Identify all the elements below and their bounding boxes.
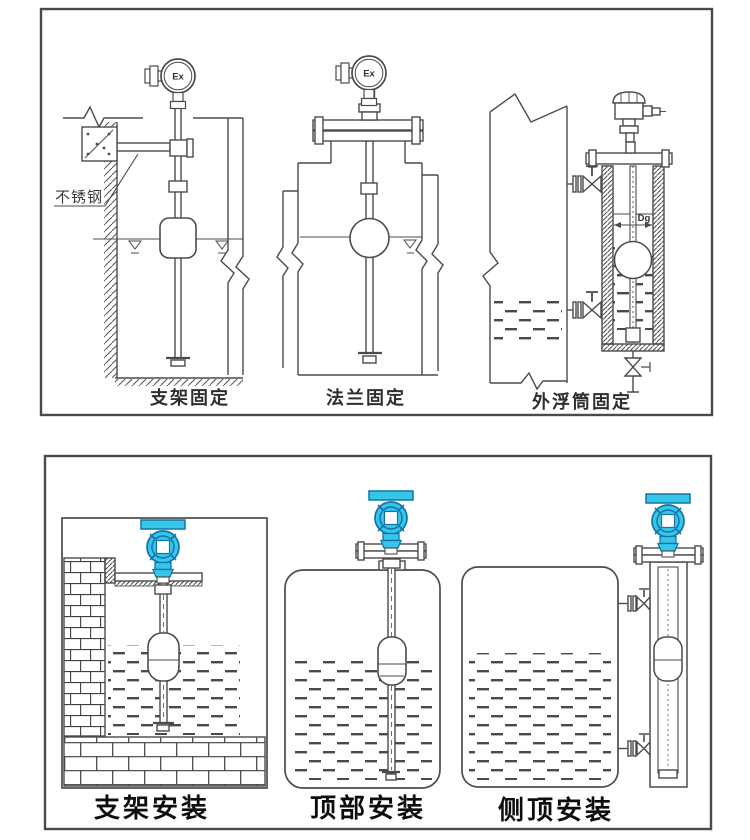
- liquid: [293, 655, 432, 780]
- bracket-arm: [117, 143, 170, 151]
- caption-top-installation: 顶部安装: [310, 793, 426, 823]
- chamber-wall: [653, 166, 664, 344]
- ball-float: [350, 219, 389, 258]
- ball-float: [615, 242, 652, 279]
- fixing-methods-panel: 不锈钢 Ex Ex: [41, 9, 712, 415]
- vessel-liquid: [494, 298, 562, 340]
- arm-end-cap: [187, 139, 193, 157]
- flange-tick: [578, 176, 581, 192]
- chamber-wall: [602, 166, 613, 344]
- stem-end-weight: [171, 360, 185, 366]
- cable-connector: [643, 106, 652, 116]
- flange-tick: [573, 176, 576, 192]
- stem-coupling: [361, 183, 377, 194]
- installation-methods-panel: 支架安装 顶部安装 侧顶安装: [45, 456, 711, 829]
- flange-tick: [633, 596, 636, 611]
- stem-end-weight: [363, 356, 376, 363]
- stem-collar: [170, 140, 187, 156]
- flange-plate: [313, 120, 423, 130]
- ex-marking: Ex: [172, 72, 184, 83]
- head-nut: [620, 126, 638, 133]
- flange-bolt: [412, 117, 420, 144]
- float: [378, 637, 406, 685]
- flange-bolt: [315, 117, 323, 144]
- bracket-installation-diagram: [62, 518, 267, 788]
- neck-riser: [362, 112, 377, 120]
- wall-cap: [105, 558, 115, 583]
- cable-connector: [652, 108, 660, 115]
- stem-coupling: [155, 585, 171, 594]
- head-riser: [626, 142, 635, 153]
- float: [654, 637, 682, 681]
- flange-tick: [578, 302, 581, 318]
- flange-tick: [628, 741, 631, 756]
- chamber-bottom: [602, 344, 664, 351]
- junction-box-head: [615, 103, 643, 119]
- top-flange: [586, 153, 672, 164]
- flange-bolt: [589, 150, 596, 167]
- head-riser: [626, 133, 634, 142]
- installation-diagram-canvas: 不锈钢 Ex Ex: [0, 0, 750, 840]
- caption-external-chamber-fixing: 外浮筒固定: [532, 391, 632, 412]
- tube-end-cap: [659, 770, 677, 778]
- stem-end-weight: [157, 725, 169, 731]
- flange-bolt: [418, 542, 424, 560]
- ex-marking: Ex: [363, 69, 375, 80]
- float: [160, 218, 196, 258]
- stem-coupling: [383, 559, 400, 568]
- brick-wall: [64, 558, 105, 736]
- ground-hatch: [115, 379, 243, 386]
- dg-label: Dg: [638, 213, 651, 224]
- flange-tick: [573, 302, 576, 318]
- flange-plate: [313, 131, 423, 141]
- stem-coupling: [169, 181, 187, 192]
- caption-side-top-installation: 侧顶安装: [498, 795, 614, 825]
- flange-tick: [633, 741, 636, 756]
- float: [148, 633, 179, 681]
- flange-bolt: [662, 150, 669, 167]
- float-level-transmitter-installation-figure: 不锈钢 Ex Ex: [0, 0, 750, 840]
- stem-bottom-fitting: [626, 328, 640, 342]
- brick-floor: [64, 737, 265, 786]
- liquid: [469, 653, 611, 780]
- caption-bracket-fixing: 支架固定: [149, 387, 230, 408]
- flange-bolt: [358, 542, 364, 560]
- flange-tick: [628, 596, 631, 611]
- caption-flange-fixing: 法兰固定: [326, 387, 406, 408]
- flange-bolt: [636, 546, 642, 564]
- head-neck: [623, 119, 635, 126]
- stem-end-weight: [386, 774, 396, 780]
- flange-bolt: [695, 546, 701, 564]
- caption-bracket-installation: 支架安装: [94, 793, 210, 823]
- stainless-steel-annotation: 不锈钢: [55, 189, 103, 206]
